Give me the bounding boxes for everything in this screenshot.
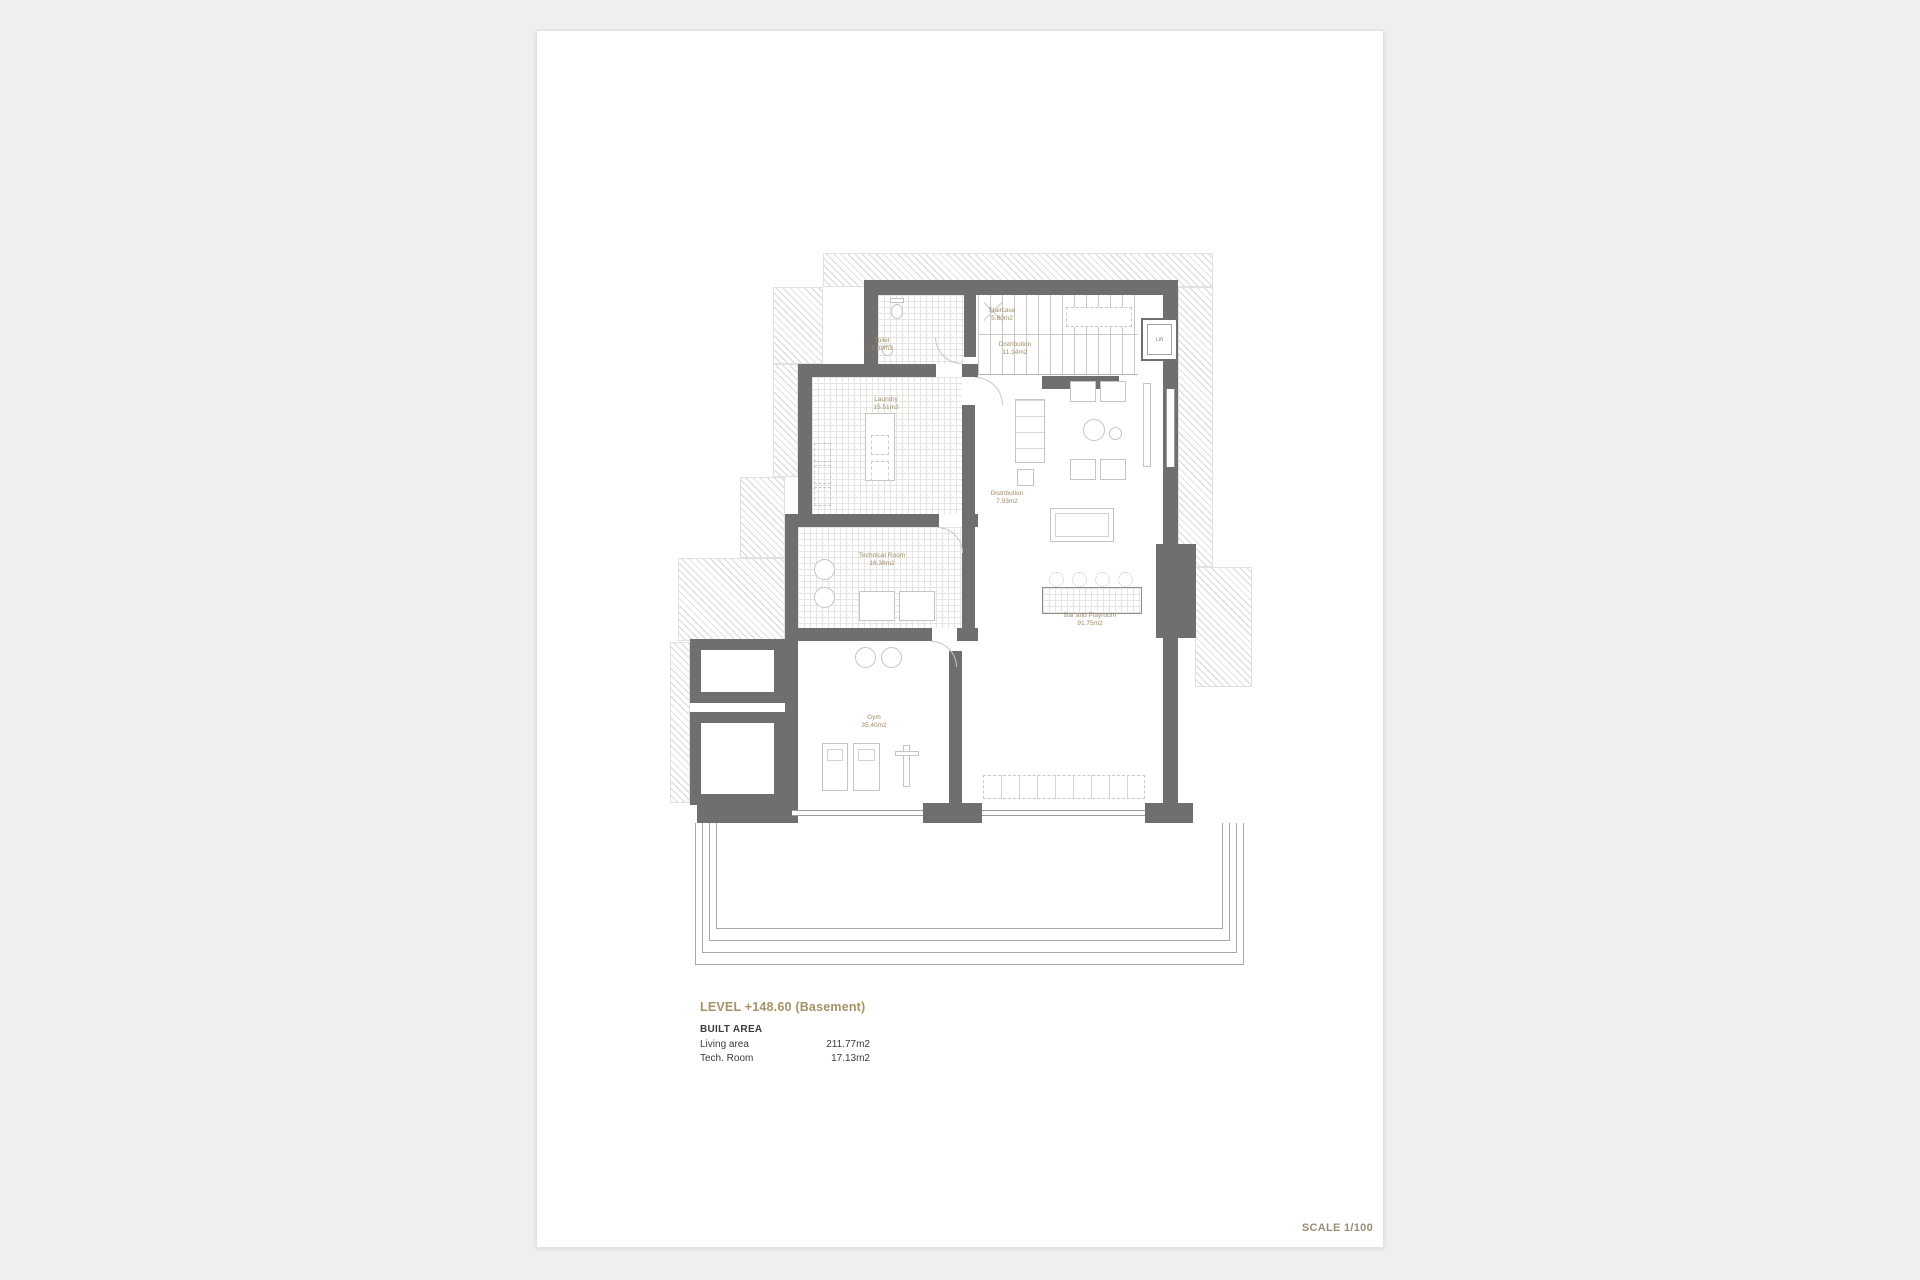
staircase-area: 5.80m2 [962, 315, 1042, 323]
level-title: LEVEL +148.60 (Basement) [700, 1000, 865, 1014]
distribution-upper-name: Distribution [975, 341, 1055, 349]
built-area-table: Living area 211.77m2 Tech. Room 17.13m2 [700, 1038, 870, 1065]
gym-treadmill-1 [822, 743, 848, 791]
armchair-2 [1100, 381, 1126, 402]
lift-car: Lift [1147, 324, 1172, 355]
laundry-appliance-1 [814, 443, 831, 462]
site-hatch-right-lower [1195, 567, 1252, 687]
south-window-left [792, 810, 923, 816]
room-label-distribution-upper: Distribution 11.14m2 [975, 341, 1055, 358]
east-window [1166, 389, 1175, 467]
toilet-name: Toilet [852, 337, 912, 345]
gym-bench-crossbar [895, 751, 919, 756]
tech-tank-2 [814, 587, 835, 608]
tv-bench [1143, 383, 1151, 467]
gym-treadmill-1-belt [827, 749, 843, 761]
side-table [1017, 469, 1034, 486]
bar-playroom-area: 91.75m2 [1030, 620, 1150, 628]
site-hatch-left-mid1 [773, 364, 798, 477]
wall-gym-west [785, 641, 798, 823]
living-area-value: 211.77m2 [800, 1039, 870, 1050]
built-area-row-tech: Tech. Room 17.13m2 [700, 1052, 870, 1066]
gym-ball-1 [855, 647, 876, 668]
bar-stool-2 [1072, 572, 1087, 587]
distribution-lower-name: Distribution [967, 490, 1047, 498]
gym-treadmill-2 [853, 743, 880, 791]
scale-label: SCALE 1/100 [1302, 1222, 1373, 1234]
pool-table-inner [1055, 513, 1109, 537]
round-table [1083, 419, 1105, 441]
terrace-step-4 [716, 823, 1223, 929]
wall-top [864, 280, 1178, 295]
drawing-canvas: Lift [0, 0, 1920, 1280]
tech-room-label: Tech. Room [700, 1053, 800, 1064]
bar-stool-3 [1095, 572, 1110, 587]
wall-south-pier-left [697, 803, 792, 823]
wall-gym-bar-divider [949, 651, 962, 803]
wc-bowl [891, 304, 903, 319]
wall-laundry-north-b [962, 364, 978, 377]
site-hatch-left-mid2 [740, 477, 785, 558]
laundry-appliance-2 [814, 465, 831, 484]
laundry-island-dashed-2 [871, 461, 889, 481]
lift-label: Lift [1156, 337, 1163, 343]
gym-ball-2 [881, 647, 902, 668]
staircase-name: Staircase [962, 307, 1042, 315]
laundry-area: 15.51m2 [846, 404, 926, 412]
pool-table [1050, 508, 1114, 542]
wall-corridor-west [962, 405, 975, 628]
door-arc-corridor [975, 377, 1003, 405]
wall-south-pier-mid [923, 803, 982, 823]
room-label-gym: Gym 35.40m2 [834, 714, 914, 731]
laundry-island-dashed-1 [871, 435, 889, 455]
wall-tech-gym-divider-a [785, 628, 932, 641]
gym-treadmill-2-belt [858, 749, 875, 761]
gym-name: Gym [834, 714, 914, 722]
staircase-landing-dashed [1066, 307, 1132, 327]
room-label-distribution-lower: Distribution 7.93m2 [967, 490, 1047, 507]
laundry-appliance-3 [814, 487, 831, 506]
door-arc-gym [931, 641, 957, 667]
room-label-laundry: Laundry 15.51m2 [846, 396, 926, 413]
drawing-sheet: Lift [536, 30, 1384, 1248]
bar-stool-1 [1049, 572, 1064, 587]
living-area-label: Living area [700, 1039, 800, 1050]
wall-tech-gym-divider-b [957, 628, 978, 641]
wall-laundry-north-a [799, 364, 936, 377]
room-label-bar-playroom: Bar and Playroom 91.75m2 [1030, 612, 1150, 629]
armchair-4 [1100, 459, 1126, 480]
bar-stool-4 [1118, 572, 1133, 587]
wall-laundry-tech-divider-a [785, 514, 939, 527]
wall-right-pillar-block [1156, 544, 1196, 638]
distribution-upper-area: 11.14m2 [975, 349, 1055, 357]
built-area-row-living: Living area 211.77m2 [700, 1038, 870, 1052]
storage-room-upper [690, 639, 785, 703]
toilet-area: 3.09m2 [852, 345, 912, 353]
tech-room-value: 17.13m2 [800, 1053, 870, 1064]
tech-equipment-1 [859, 591, 895, 621]
wall-tech-west [785, 514, 798, 641]
armchair-1 [1070, 381, 1096, 402]
round-chair [1109, 427, 1122, 440]
room-label-technical-room: Technical Room 16.38m2 [832, 552, 932, 569]
site-hatch-left-strip [670, 642, 690, 803]
south-window-right [982, 810, 1145, 816]
wall-topblock-left [864, 280, 878, 377]
technical-room-area: 16.38m2 [832, 560, 932, 568]
distribution-lower-area: 7.93m2 [967, 498, 1047, 506]
wc-tank [890, 298, 904, 303]
laundry-name: Laundry [846, 396, 926, 404]
tech-equipment-2 [899, 591, 935, 621]
sofa [1015, 399, 1045, 463]
site-hatch-left-lower [678, 558, 785, 641]
gym-area: 35.40m2 [834, 722, 914, 730]
lift-shaft: Lift [1141, 318, 1178, 361]
room-label-staircase: Staircase 5.80m2 [962, 307, 1042, 324]
technical-room-name: Technical Room [832, 552, 932, 560]
armchair-3 [1070, 459, 1096, 480]
bar-playroom-name: Bar and Playroom [1030, 612, 1150, 620]
wall-laundry-west [798, 364, 812, 514]
staircase-midline [978, 334, 1138, 335]
built-area-heading: BUILT AREA [700, 1024, 762, 1035]
wall-south-pier-right [1145, 803, 1193, 823]
bar-counter [1042, 587, 1142, 614]
room-label-toilet: Toilet 3.09m2 [852, 337, 912, 354]
site-hatch-left-upper [773, 287, 823, 364]
storage-room-lower [690, 712, 785, 805]
site-hatch-right-upper [1178, 287, 1213, 567]
bar-shelf-dashed [983, 775, 1145, 799]
